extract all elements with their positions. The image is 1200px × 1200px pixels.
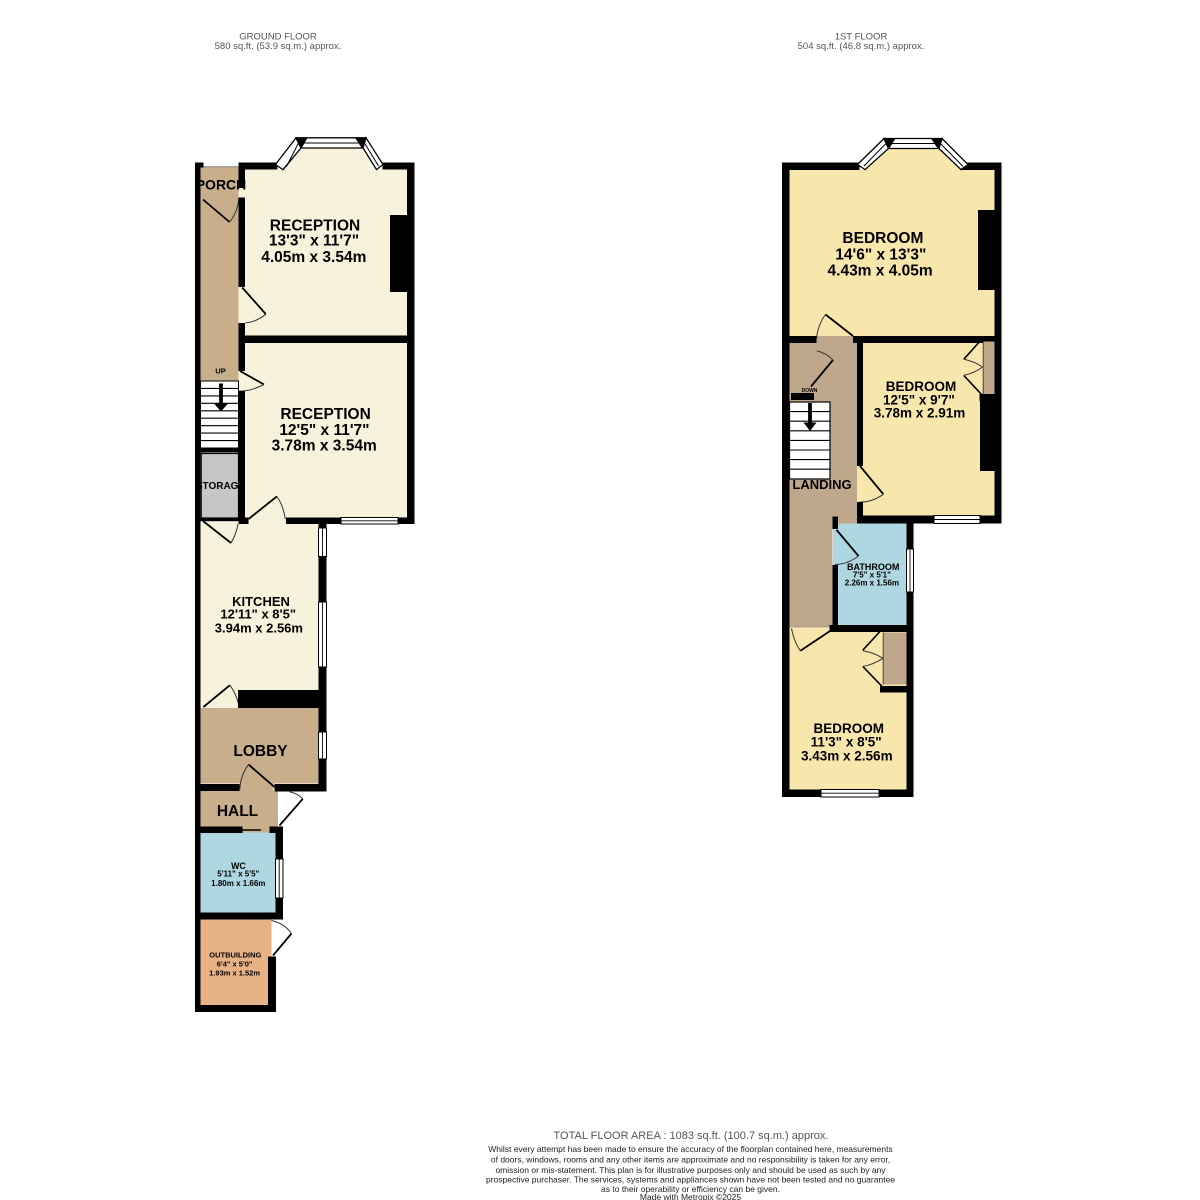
- svg-text:580 sq.ft. (53.9 sq.m.) approx: 580 sq.ft. (53.9 sq.m.) approx.: [215, 41, 342, 52]
- svg-text:2.26m x 1.56m: 2.26m x 1.56m: [845, 579, 899, 588]
- svg-text:5'11" x 5'5": 5'11" x 5'5": [217, 870, 259, 879]
- svg-text:LOBBY: LOBBY: [233, 743, 288, 760]
- svg-text:OUTBUILDING: OUTBUILDING: [209, 951, 261, 960]
- svg-text:12'5" x 11'7": 12'5" x 11'7": [279, 422, 369, 439]
- svg-text:omission or mis-statement. Thi: omission or mis-statement. This plan is …: [495, 1165, 886, 1175]
- svg-text:4.43m x 4.05m: 4.43m x 4.05m: [828, 262, 933, 279]
- svg-text:RECEPTION: RECEPTION: [280, 406, 370, 423]
- svg-text:3.94m x 2.56m: 3.94m x 2.56m: [215, 620, 303, 635]
- svg-text:UP: UP: [215, 367, 225, 376]
- svg-text:14'6" x 13'3": 14'6" x 13'3": [835, 246, 926, 263]
- svg-text:3.43m x 2.56m: 3.43m x 2.56m: [801, 749, 893, 764]
- svg-text:3.78m x 3.54m: 3.78m x 3.54m: [272, 438, 377, 455]
- svg-text:4.05m x 3.54m: 4.05m x 3.54m: [261, 249, 366, 266]
- svg-text:LANDING: LANDING: [792, 477, 851, 492]
- svg-text:11'3" x 8'5": 11'3" x 8'5": [811, 735, 882, 750]
- svg-text:HALL: HALL: [217, 803, 258, 820]
- svg-text:BEDROOM: BEDROOM: [842, 230, 923, 247]
- svg-text:Whilst every attempt has been: Whilst every attempt has been made to en…: [488, 1144, 892, 1154]
- svg-text:13'3" x 11'7": 13'3" x 11'7": [269, 233, 359, 250]
- svg-text:504 sq.ft. (46.8 sq.m.) approx: 504 sq.ft. (46.8 sq.m.) approx.: [798, 41, 925, 52]
- svg-text:STORAGE: STORAGE: [196, 481, 246, 492]
- svg-text:of doors, windows, rooms and a: of doors, windows, rooms and any other i…: [491, 1155, 890, 1165]
- svg-text:3.78m x 2.91m: 3.78m x 2.91m: [874, 406, 966, 421]
- svg-text:1.80m x 1.66m: 1.80m x 1.66m: [211, 879, 265, 888]
- svg-text:1.93m x 1.52m: 1.93m x 1.52m: [209, 968, 260, 977]
- svg-text:Made with Metropix ©2025: Made with Metropix ©2025: [640, 1192, 742, 1200]
- svg-text:DOWN: DOWN: [802, 388, 818, 394]
- svg-text:TOTAL FLOOR AREA : 1083 sq.ft.: TOTAL FLOOR AREA : 1083 sq.ft. (100.7 sq…: [554, 1130, 829, 1142]
